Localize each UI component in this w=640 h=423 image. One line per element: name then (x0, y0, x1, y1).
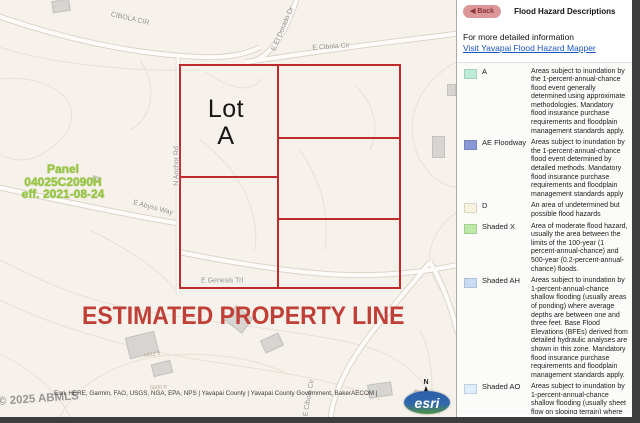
flood-mapper-link[interactable]: Visit Yavapai Flood Hazard Mapper (463, 43, 596, 53)
flood-hazard-panel: ◀ Back Flood Hazard Descriptions For mor… (456, 0, 632, 417)
legend-row-zone-d: D An area of undetermined but possible f… (464, 201, 630, 221)
zone-a-swatch (464, 69, 477, 79)
zone-shaded-ah-description: Areas subject to inundation by 1-percent… (531, 277, 630, 380)
lot-label-line2: A (186, 123, 266, 150)
zone-shaded-ah-swatch (464, 278, 477, 288)
legend-row-zone-ae-floodway: AE Floodway Areas subject to inundation … (464, 138, 630, 201)
firm-panel-note-line3: eff. 2021-08-24 (10, 188, 116, 201)
zone-d-swatch (464, 203, 477, 213)
lot-label: Lot A (186, 96, 266, 150)
lot-label-line1: Lot (186, 96, 266, 123)
map-canvas (0, 0, 456, 417)
zone-ae-description: Areas subject to inundation by the 1-per… (531, 139, 630, 199)
estimated-property-line-label: ESTIMATED PROPERTY LINE (82, 302, 404, 331)
zone-shaded-x-description: Area of moderate flood hazard, usually t… (531, 223, 630, 275)
zone-shaded-ao-description: Areas subject to inundation by 1-percent… (531, 383, 630, 413)
legend-row-zone-a: A Areas subject to inundation by the 1-p… (464, 67, 630, 139)
legend-row-zone-shaded-ah: Shaded AH Areas subject to inundation by… (464, 276, 630, 382)
firm-panel-note-line1: Panel (10, 163, 116, 176)
firm-panel-note: Panel 04025C2090H eff. 2021-08-24 (10, 163, 116, 201)
street-label-n-anchor-rd: N Anchor Rd (174, 146, 181, 186)
info-text: For more detailed information (463, 32, 626, 44)
esri-logo-text: esri (415, 395, 440, 411)
esri-logo[interactable]: esri (404, 391, 450, 414)
panel-header: ◀ Back Flood Hazard Descriptions (457, 0, 632, 21)
building-footprint (432, 136, 445, 158)
zone-a-description: Areas subject to inundation by the 1-per… (531, 68, 630, 137)
zone-shaded-x-swatch (464, 224, 477, 234)
zone-d-label: D (482, 202, 528, 219)
zone-shaded-ah-label: Shaded AH (482, 277, 528, 380)
panel-info: For more detailed information Visit Yava… (457, 21, 632, 62)
app-window: CIBOLA CIR E El Dorado Dr E Cibola Cir N… (0, 0, 640, 423)
zone-shaded-x-label: Shaded X (482, 223, 528, 275)
zone-ae-swatch (464, 140, 477, 150)
flood-zone-legend: A Areas subject to inundation by the 1-p… (457, 62, 632, 414)
building-footprint (447, 84, 456, 96)
north-arrow-label: N (423, 379, 428, 386)
zone-shaded-ao-swatch (464, 384, 477, 394)
map-viewport[interactable]: CIBOLA CIR E El Dorado Dr E Cibola Cir N… (0, 0, 456, 417)
zone-a-label: A (482, 68, 528, 137)
zone-d-description: An area of undetermined but possible flo… (531, 202, 630, 219)
street-label-e-genesis-trl: E Genesis Trl (201, 278, 243, 285)
zone-ae-label: AE Floodway (482, 139, 528, 199)
legend-row-zone-shaded-ao: Shaded AO Areas subject to inundation by… (464, 382, 630, 413)
back-button[interactable]: ◀ Back (463, 5, 501, 18)
legend-row-zone-shaded-x: Shaded X Area of moderate flood hazard, … (464, 222, 630, 277)
panel-title: Flood Hazard Descriptions (514, 7, 615, 16)
zone-shaded-ao-label: Shaded AO (482, 383, 528, 413)
map-attribution: Esri, HERE, Garmin, FAO, USGS, NGA, EPA,… (54, 390, 377, 397)
